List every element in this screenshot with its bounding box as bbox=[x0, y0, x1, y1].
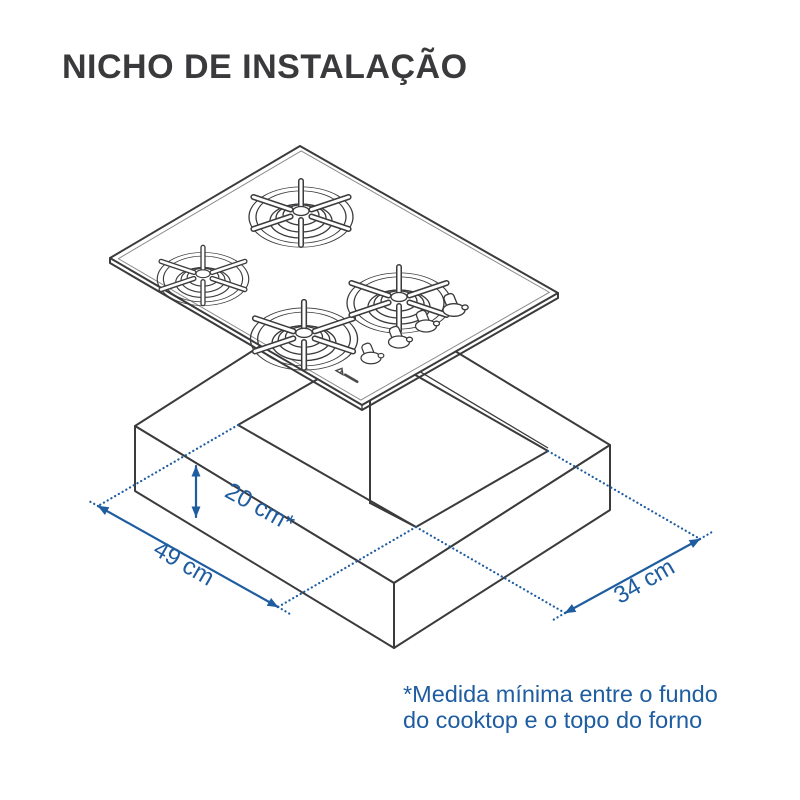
footnote: *Medida mínima entre o fundo do cooktop … bbox=[403, 681, 718, 733]
installation-niche-page: NICHO DE INSTALAÇÃO bbox=[0, 0, 800, 800]
installation-niche-diagram: NICHO DE INSTALAÇÃO bbox=[0, 0, 800, 800]
extension-overshoot bbox=[553, 613, 565, 620]
footnote-line-2: do cooktop e o topo do forno bbox=[403, 707, 702, 733]
cooktop-illustration bbox=[110, 146, 558, 410]
footnote-line-1: *Medida mínima entre o fundo bbox=[403, 681, 718, 707]
page-title: NICHO DE INSTALAÇÃO bbox=[62, 48, 468, 86]
extension-overshoot bbox=[700, 532, 712, 539]
dimension-label-depth: 34 cm bbox=[609, 553, 679, 609]
extension-overshoot bbox=[87, 500, 98, 506]
extension-overshoot bbox=[278, 607, 290, 614]
dimension-label-width: 49 cm bbox=[149, 535, 219, 591]
cooktop-glass-panel bbox=[110, 146, 558, 405]
